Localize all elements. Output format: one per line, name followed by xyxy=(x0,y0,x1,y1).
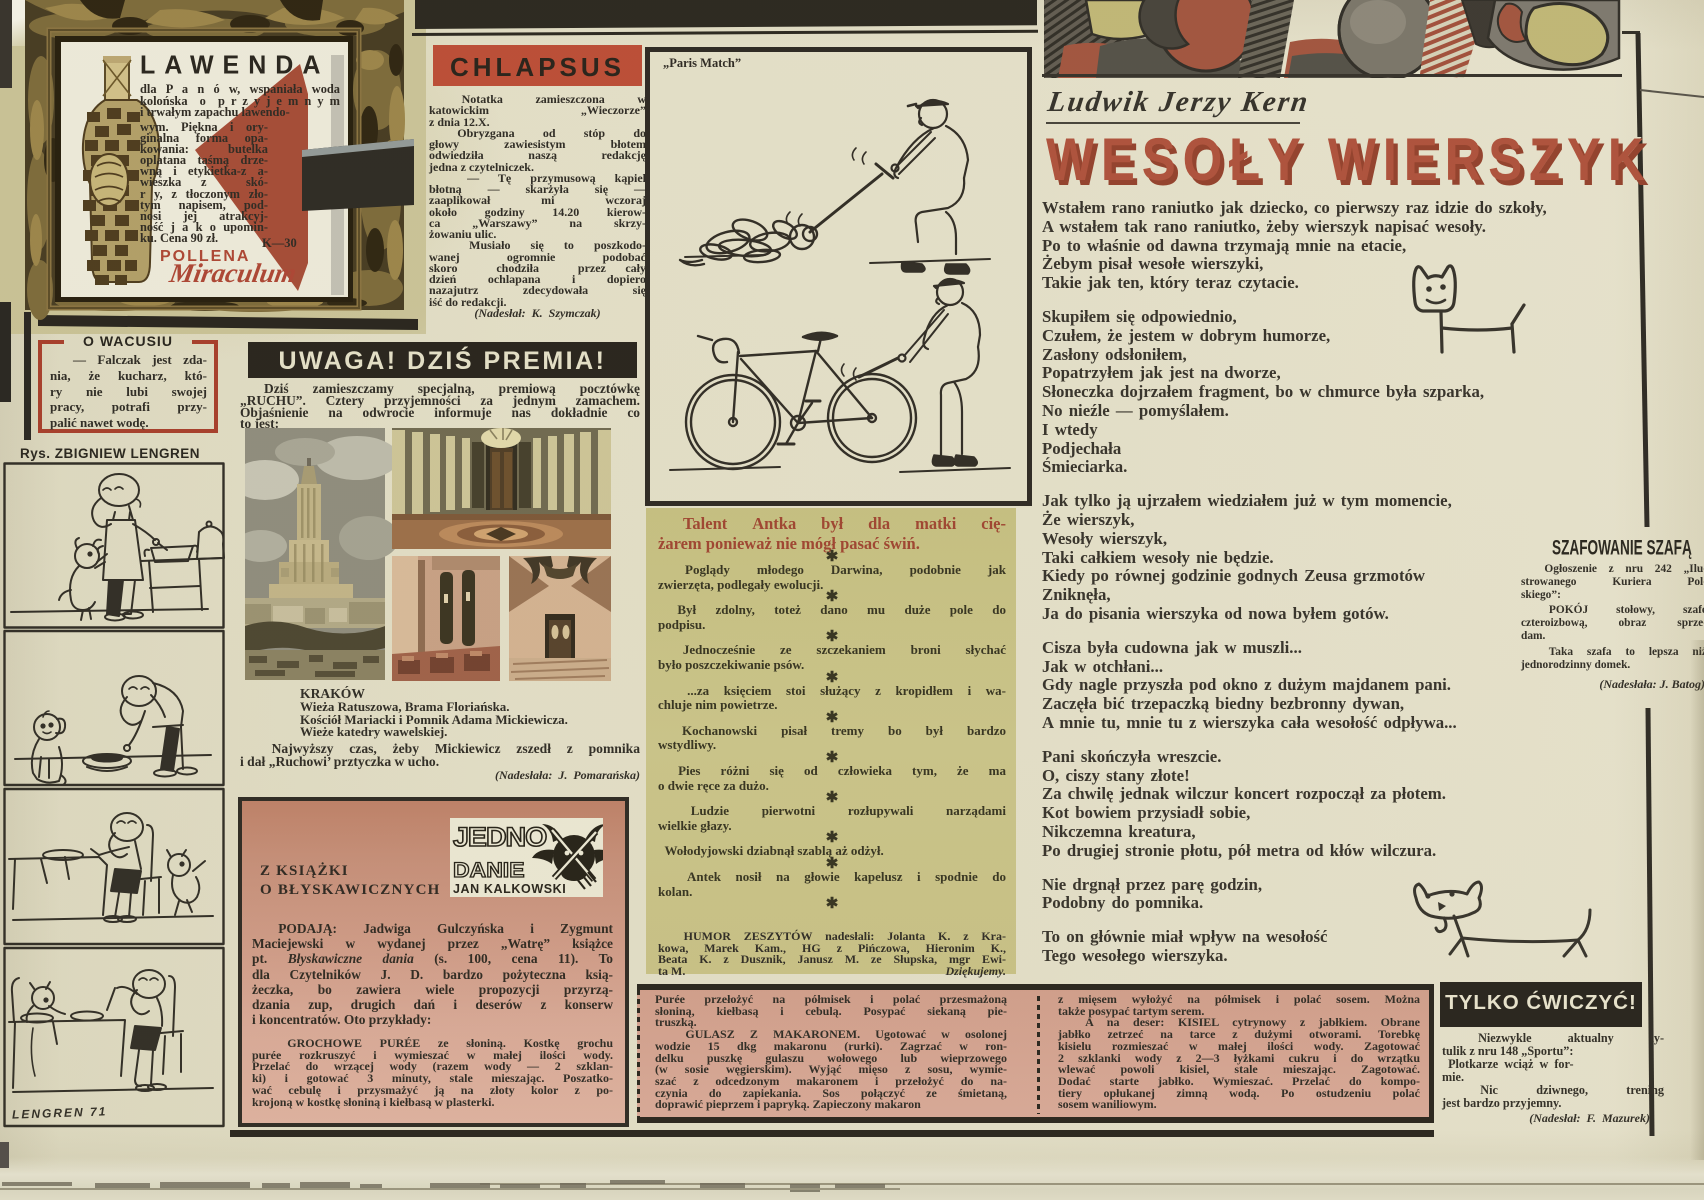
svg-text:JEDNO: JEDNO xyxy=(453,822,547,852)
